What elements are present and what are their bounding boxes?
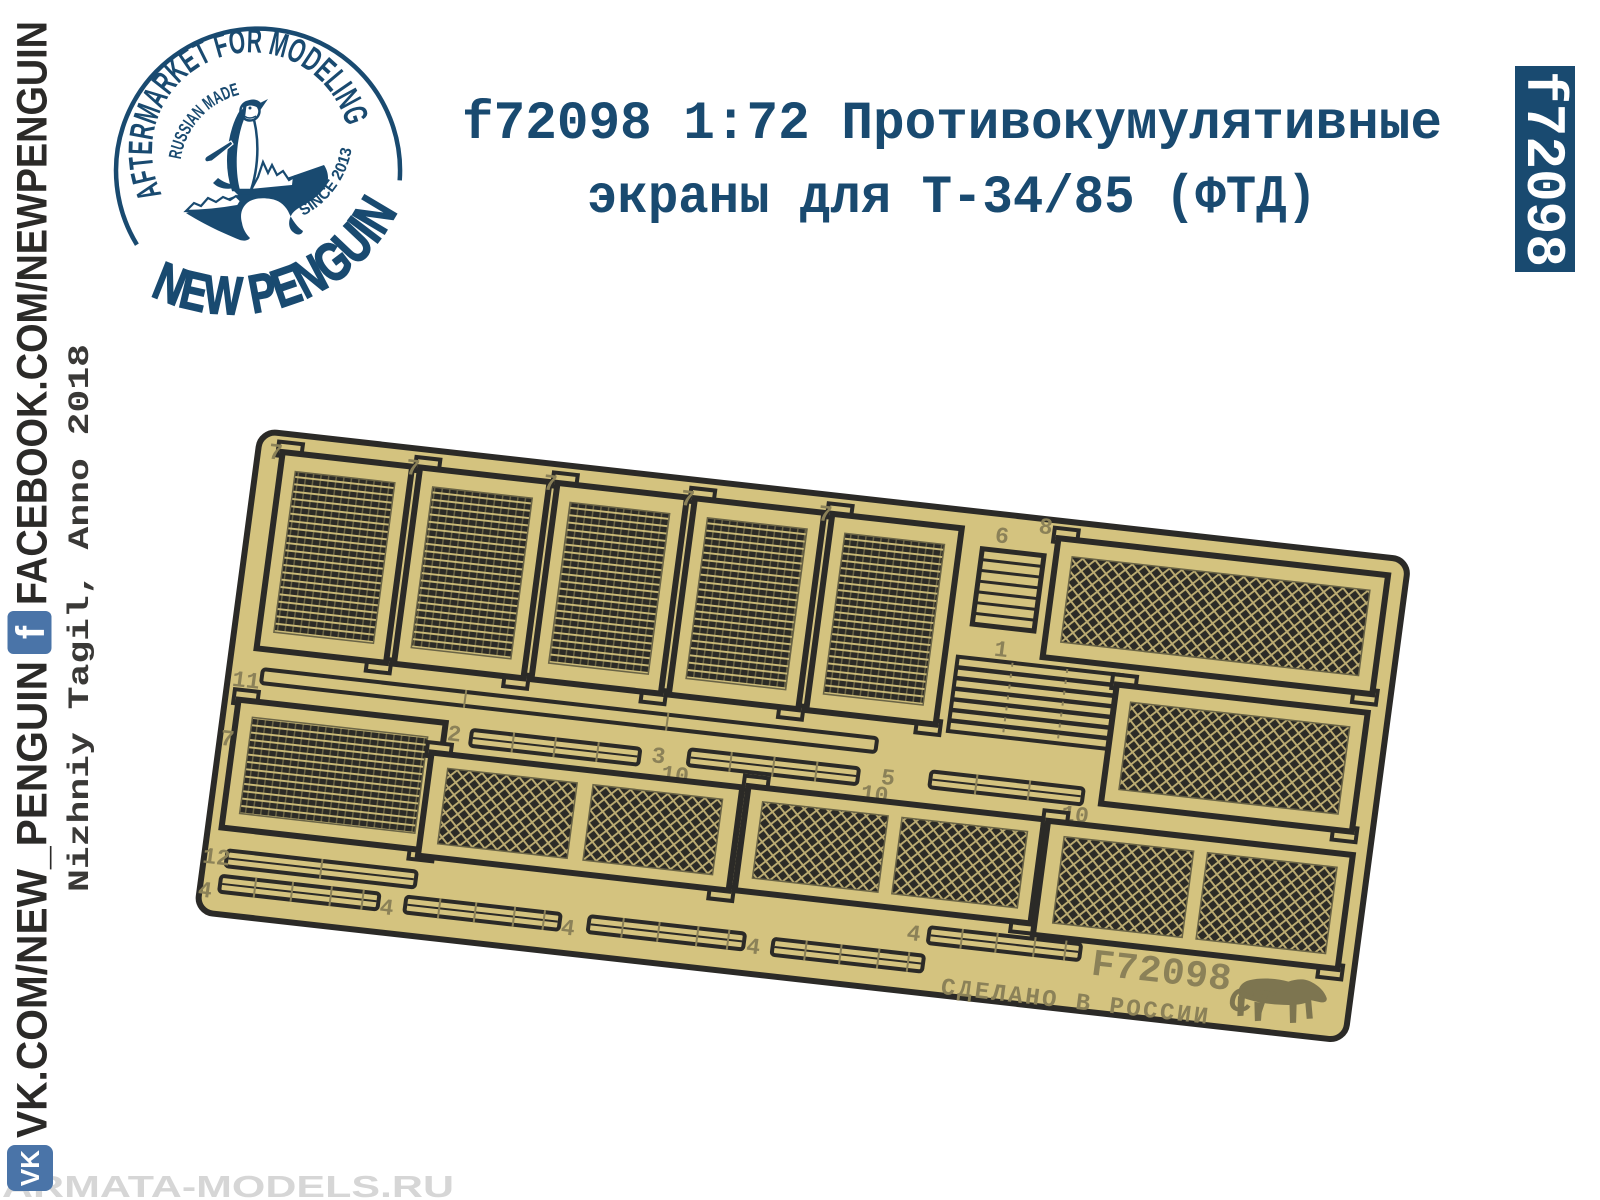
svg-text:VK: VK <box>15 1150 45 1186</box>
svg-text:Nizhniy Tagil, Anno 2018: Nizhniy Tagil, Anno 2018 <box>64 344 98 892</box>
svg-text:f72098 1:72 Противокумулятивны: f72098 1:72 Противокумулятивные <box>462 94 1442 155</box>
svg-text:ARMATA-MODELS.RU: ARMATA-MODELS.RU <box>2 1169 454 1200</box>
svg-text:11: 11 <box>230 667 261 696</box>
svg-text:FACEBOOK.COM/NEWPENGUIN: FACEBOOK.COM/NEWPENGUIN <box>9 21 57 605</box>
svg-text:12: 12 <box>201 844 232 873</box>
svg-text:экраны для Т-34/85 (ФТД): экраны для Т-34/85 (ФТД) <box>587 168 1317 229</box>
svg-text:f72098: f72098 <box>1511 71 1575 267</box>
svg-text:NEW PENGUIN: NEW PENGUIN <box>145 187 408 327</box>
svg-text:СТ: СТ <box>1226 980 1278 1023</box>
svg-text:f: f <box>9 625 53 639</box>
svg-text:VK.COM/NEW_PENGUIN: VK.COM/NEW_PENGUIN <box>9 661 57 1138</box>
